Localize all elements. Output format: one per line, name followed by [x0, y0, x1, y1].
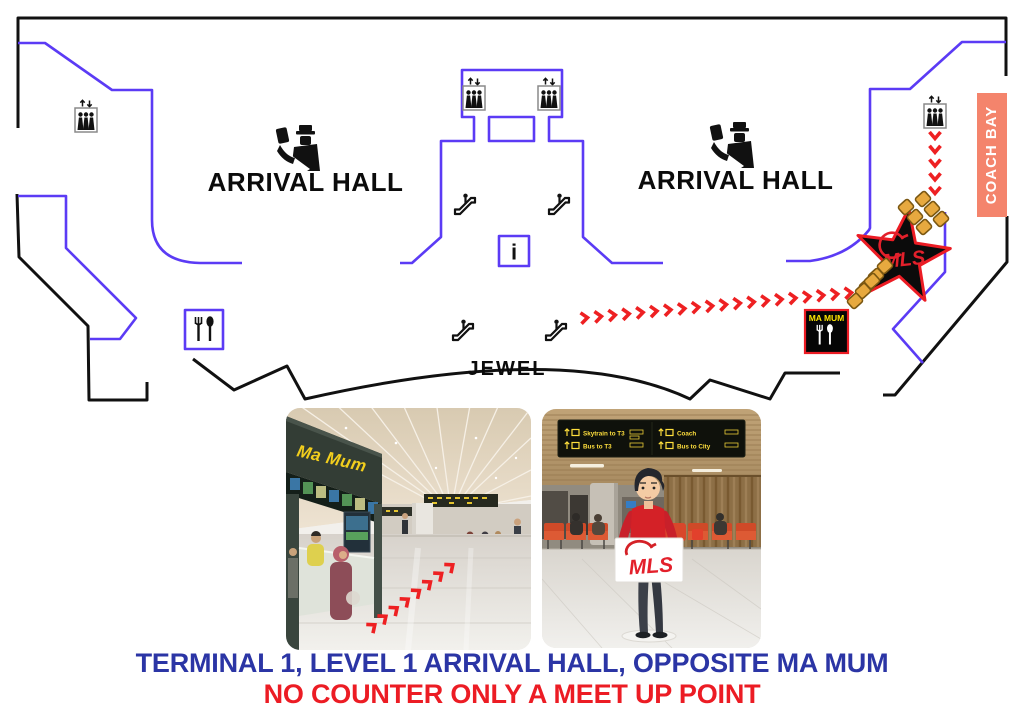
escalator-icon	[546, 320, 566, 340]
route-chevron	[930, 146, 941, 153]
left-arrival-hall-label: ARRIVAL HALL	[153, 167, 458, 198]
restaurant-icon	[185, 310, 223, 349]
route-chevron	[930, 187, 941, 194]
route-chevron	[930, 160, 941, 167]
lift-icon	[463, 78, 485, 110]
route-chevron	[706, 300, 714, 312]
escalator-icon	[455, 194, 475, 214]
route-chevron	[930, 173, 941, 180]
route-chevron	[733, 298, 741, 310]
fork-icon	[196, 317, 202, 341]
route-chevron	[789, 292, 797, 304]
lift-icon	[75, 100, 97, 132]
route-chevron	[622, 308, 630, 320]
ma-mum-label: MA MUM	[809, 313, 845, 323]
route-chevron	[817, 290, 825, 302]
route-chevron	[389, 603, 401, 616]
jewel-label: JEWEL	[437, 358, 577, 381]
route-chevron	[678, 303, 686, 315]
lift-icon	[538, 78, 560, 110]
route-chevron	[366, 621, 378, 634]
coach-bay-badge: COACH BAY	[977, 93, 1007, 217]
route-chevron	[608, 310, 616, 322]
spoon-icon	[206, 316, 213, 341]
route-chevron	[664, 304, 672, 316]
route-chevron	[831, 288, 839, 300]
route-chevron	[803, 291, 811, 303]
route-chevron	[692, 302, 700, 314]
terminal-map-flyer: Ma Mum	[0, 0, 1024, 724]
coach-bay-label: COACH BAY	[977, 93, 1007, 217]
info-icon: i	[499, 236, 529, 266]
route-chevron	[594, 311, 602, 323]
outer-walls	[17, 18, 1007, 400]
route-chevron	[433, 569, 445, 582]
route-chevron	[400, 595, 412, 608]
route-chevron	[411, 586, 423, 599]
route-chevron	[636, 307, 644, 319]
route-chevron	[761, 295, 769, 307]
immigration-icon	[276, 125, 320, 171]
route-chevron	[422, 578, 434, 591]
ma-mum-restaurant-marker: MA MUM	[805, 310, 848, 353]
immigration-icon	[710, 122, 754, 168]
route-chevron	[775, 294, 783, 306]
caption-note: NO COUNTER ONLY A MEET UP POINT	[0, 679, 1024, 710]
route-chevron	[377, 612, 389, 625]
escalator-icon	[453, 320, 473, 340]
interior-walls	[18, 42, 1006, 363]
route-chevron	[747, 296, 755, 308]
caption-location: TERMINAL 1, LEVEL 1 ARRIVAL HALL, OPPOSI…	[0, 648, 1024, 679]
route-chevron	[650, 306, 658, 318]
route-chevron	[930, 132, 941, 139]
route-chevrons	[366, 132, 940, 633]
escalator-icon	[549, 194, 569, 214]
lift-icon	[924, 96, 946, 128]
route-chevron	[444, 561, 456, 574]
route-chevron	[580, 312, 588, 324]
svg-text:i: i	[511, 240, 517, 265]
right-arrival-hall-label: ARRIVAL HALL	[583, 165, 888, 196]
route-chevron	[719, 299, 727, 311]
